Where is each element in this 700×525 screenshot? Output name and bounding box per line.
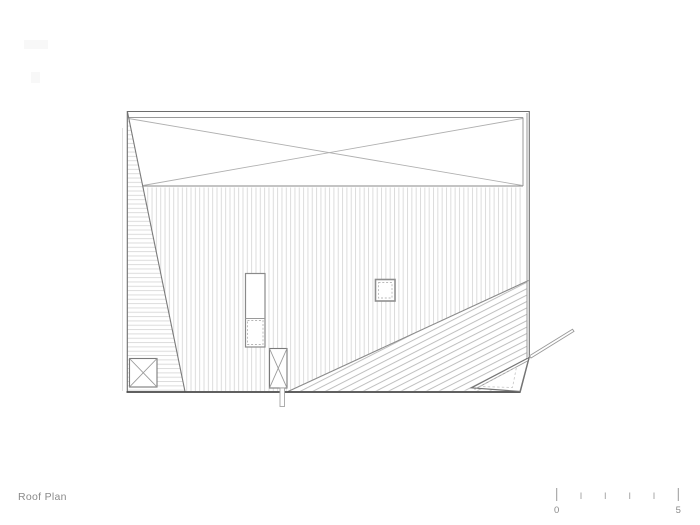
roof-hatch-box-center (270, 349, 288, 389)
skylight-long-box (246, 274, 266, 348)
drawing-sheet: 0 5 Roof Plan (0, 0, 700, 525)
downspout-stub (280, 388, 285, 407)
roof-hatch-box-left (130, 359, 158, 388)
roof-band (128, 118, 523, 187)
drawing-title: Roof Plan (18, 491, 67, 503)
roof-plan-drawing: 0 5 (0, 0, 700, 525)
gutter-rod (530, 329, 575, 358)
scale-end-label: 5 (676, 505, 681, 516)
small-skylight (376, 280, 396, 302)
scale-start-label: 0 (554, 505, 559, 516)
scale-bar: 0 5 (554, 488, 681, 516)
